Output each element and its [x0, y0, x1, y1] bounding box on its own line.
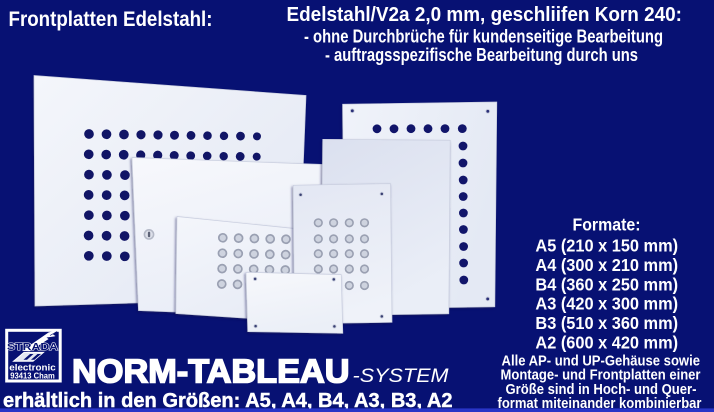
svg-text:- auftragsspezifische Bearbeit: - auftragsspezifische Bearbeitung durch …	[325, 45, 638, 65]
svg-text:93413 Cham: 93413 Cham	[10, 370, 55, 380]
svg-text:A4 (300 x 210 mm): A4 (300 x 210 mm)	[535, 255, 678, 275]
svg-text:B3 (510 x 360 mm): B3 (510 x 360 mm)	[535, 313, 678, 333]
svg-text:- ohne Durchbrüche für kundens: - ohne Durchbrüche für kundenseitige Bea…	[304, 27, 663, 47]
svg-text:A2 (600 x 420 mm): A2 (600 x 420 mm)	[535, 332, 678, 352]
svg-text:Formate:: Formate:	[573, 215, 641, 235]
svg-text:NORM-TABLEAU: NORM-TABLEAU	[72, 353, 350, 390]
svg-text:Edelstahl/V2a 2,0 mm, geschlii: Edelstahl/V2a 2,0 mm, geschliifen Korn 2…	[287, 3, 683, 26]
svg-text:B4 (360 x 250 mm): B4 (360 x 250 mm)	[535, 274, 678, 294]
svg-text:STRADA: STRADA	[7, 342, 58, 353]
svg-text:Frontplatten Edelstahl:: Frontplatten Edelstahl:	[9, 7, 213, 31]
svg-text:A3 (420 x 300 mm): A3 (420 x 300 mm)	[535, 294, 678, 314]
svg-text:-SYSTEM: -SYSTEM	[353, 365, 450, 387]
svg-text:A5 (210 x 150 mm): A5 (210 x 150 mm)	[535, 236, 678, 256]
